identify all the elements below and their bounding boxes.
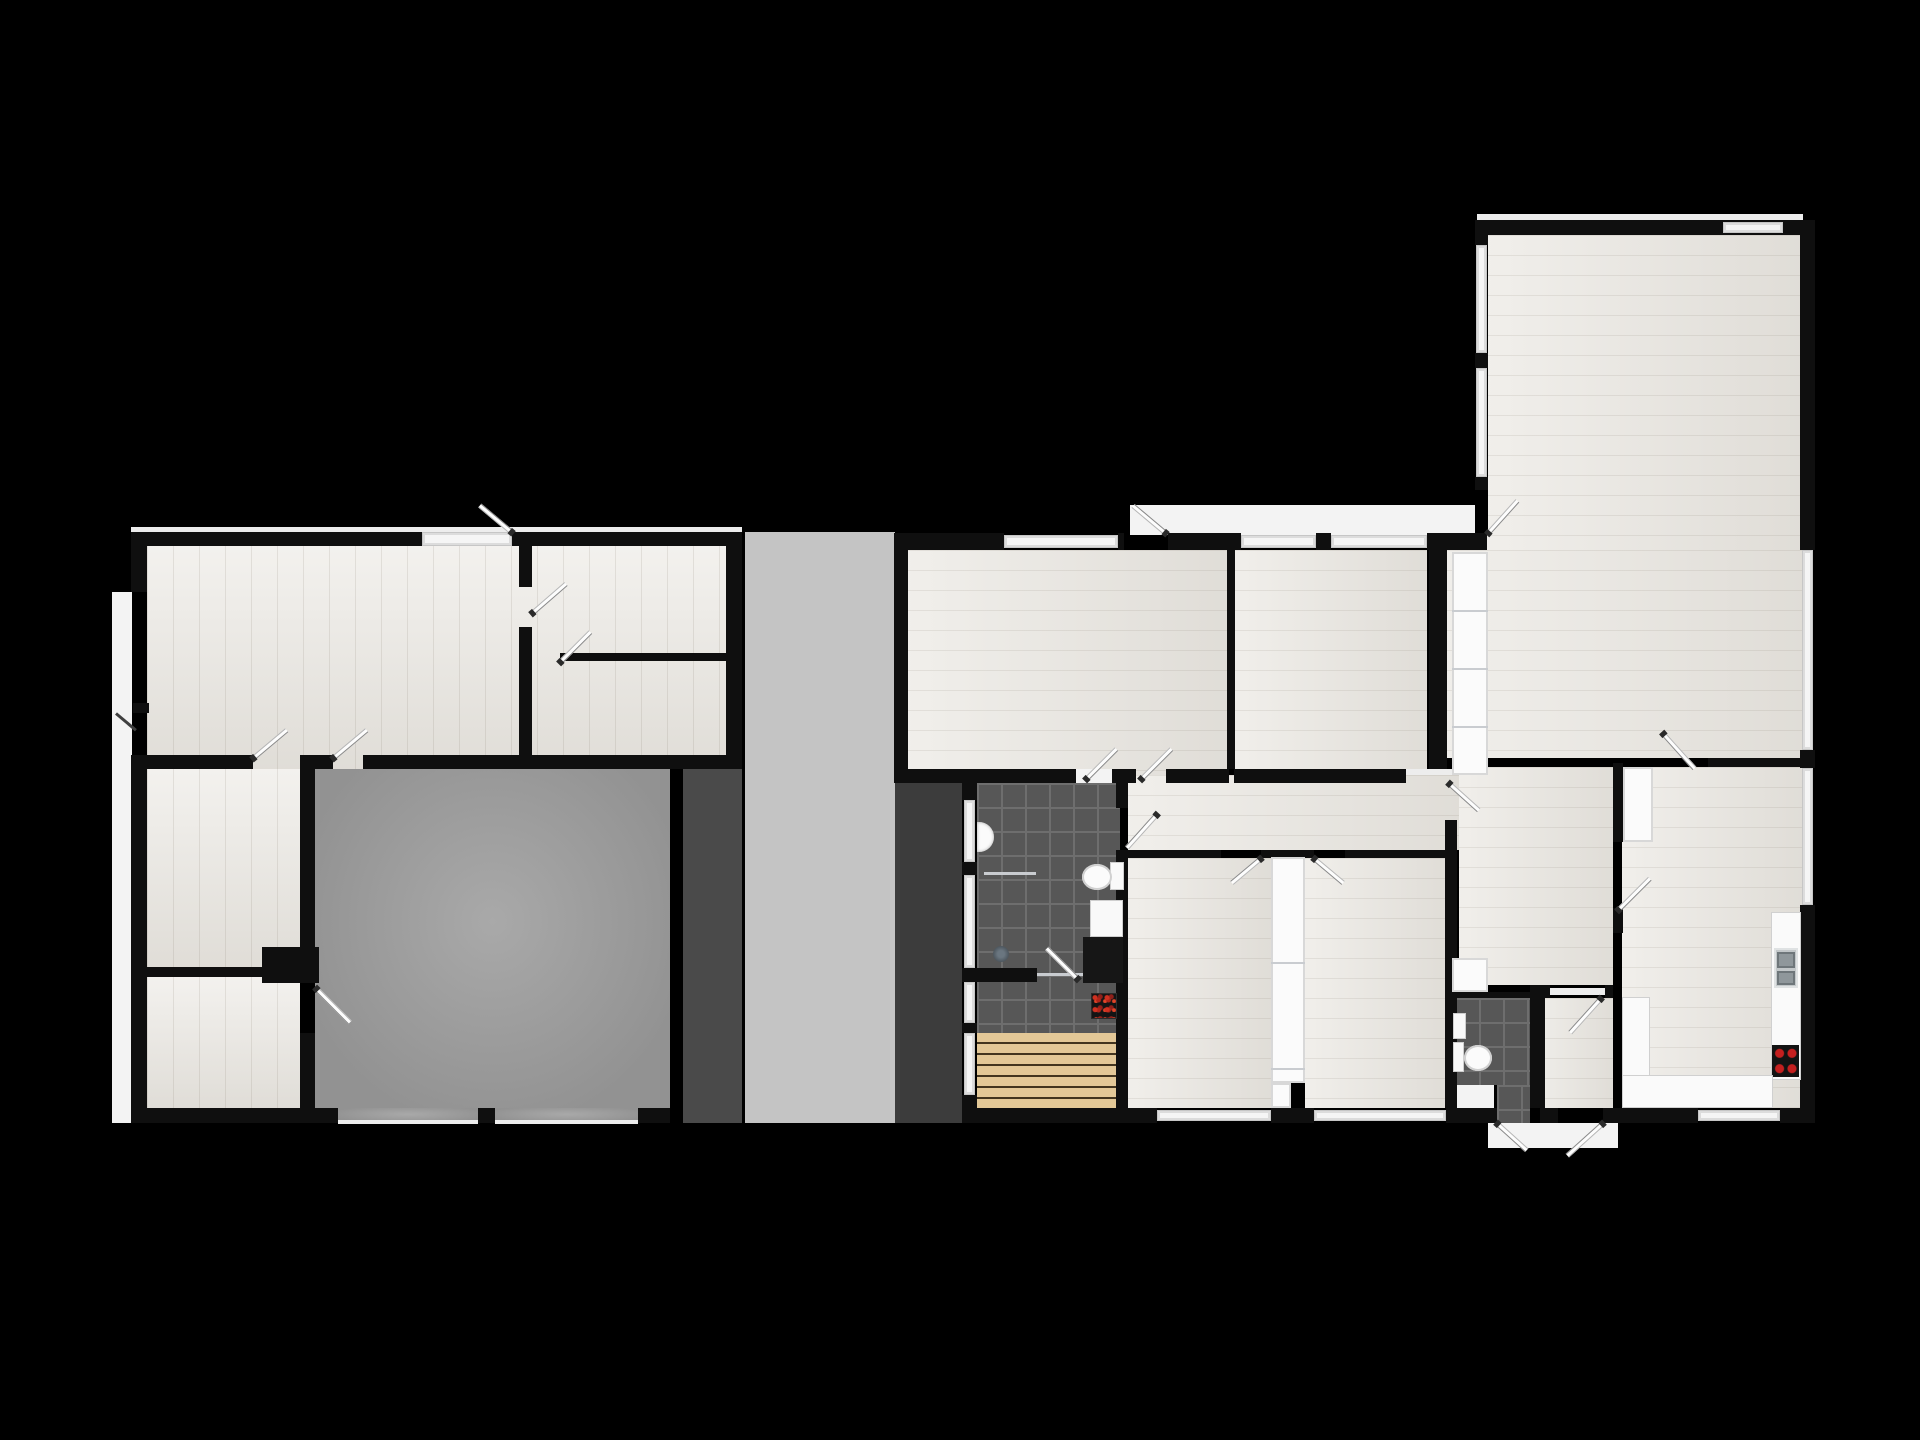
rp-wc-right-wall	[1530, 992, 1545, 1085]
lp-bottom-wall-right	[638, 1108, 670, 1123]
rp-bath-left-pier-3	[962, 968, 977, 982]
rp-kitchen-window	[1698, 1110, 1780, 1121]
rp-hall-door-bar	[1550, 988, 1605, 995]
wardrobe-divider-3	[1452, 726, 1488, 728]
rp-lr-left-wall-pier1	[1475, 235, 1488, 245]
rp-band-wall-2	[1112, 769, 1136, 783]
rp-band-wall-3	[1166, 769, 1229, 783]
bathroom-toilet-bowl	[1082, 864, 1112, 890]
bathroom-washer	[1090, 900, 1123, 937]
rp-lr-left-window-2	[1476, 368, 1487, 477]
rp-bath-window-2	[964, 875, 975, 968]
rp-lr-left-wall-pier3	[1475, 477, 1488, 490]
rp-hall-cross-wall-left	[1530, 985, 1550, 998]
rp-bedroom3-floor	[1128, 858, 1271, 1108]
between-plans-gray-band	[745, 532, 895, 1123]
lp-small-rooms-right-wall-lower	[300, 1033, 315, 1108]
rp-bottom-wall-5	[1603, 1108, 1698, 1123]
rp-room-a-window	[1004, 535, 1118, 548]
bathroom-towel-rail	[984, 872, 1036, 875]
left-plan-garage-floor	[315, 769, 670, 1108]
lp-bottom-wall-left	[131, 1108, 338, 1123]
rp-kitchen-counter-south	[1622, 1075, 1773, 1108]
rp-hall-closet	[1452, 958, 1488, 992]
garage-threshold-line-1	[338, 1120, 478, 1124]
lp-right-wall	[726, 546, 742, 769]
rp-bedroom4-window	[1314, 1110, 1446, 1121]
kitchen-sink-basin-1	[1777, 952, 1795, 968]
rp-wc-tile-floor	[1455, 998, 1530, 1085]
rp-bedrooms-top-wall-1	[1128, 850, 1221, 858]
floorplan-canvas	[0, 0, 1920, 1440]
rp-kitchen-tall-cabinet	[1623, 767, 1653, 842]
rp-right-window-2	[1802, 768, 1813, 905]
left-plan-sidewalk	[112, 592, 132, 1123]
rp-kitchen-west-wall	[1613, 763, 1623, 842]
wc-toilet-bowl	[1464, 1045, 1492, 1071]
kitchen-stove	[1772, 1045, 1799, 1077]
rp-right-window-1	[1802, 550, 1813, 750]
rp-dark-yard	[895, 769, 962, 1123]
rp-top-wall-connector	[1427, 533, 1487, 550]
rp-right-wall-top	[1800, 220, 1815, 550]
rp-right-wall-bottom	[1800, 905, 1815, 1123]
rp-wall-room-a-b	[1227, 550, 1235, 769]
rp-bath-left-pier-1	[962, 783, 977, 800]
closet-divider-line-2	[1271, 1068, 1305, 1070]
left-plan-small-room-upper-floor	[147, 769, 300, 967]
lp-midwall-a	[147, 755, 253, 769]
rp-room-b-window-2	[1331, 535, 1427, 548]
rp-left-wall	[894, 550, 908, 769]
rp-bath-left-pier-5	[962, 1095, 977, 1108]
rp-lr-kitchen-wall	[1708, 758, 1803, 767]
rp-livingroom-mid-floor	[1447, 550, 1802, 758]
rp-bottom-wall-3	[1446, 1108, 1497, 1123]
rp-sauna-benches	[977, 1033, 1120, 1108]
rp-bottom-wall-6	[1780, 1108, 1815, 1123]
rp-shower-stub-wall	[977, 968, 1037, 982]
rp-livingroom-top-window	[1723, 222, 1783, 233]
lp-left-wall-lower	[131, 755, 147, 1108]
rp-bath-left-pier-2	[962, 862, 977, 875]
lp-top-trim	[131, 527, 742, 532]
wardrobe-divider-2	[1452, 668, 1488, 670]
rp-lr-left-wall-pier2	[1475, 353, 1488, 368]
rp-lr-left-window-1	[1476, 245, 1487, 353]
rp-top-wall-a2	[1118, 533, 1124, 550]
lp-bottom-wall-mid	[478, 1108, 495, 1123]
lp-divider-wall-upper	[519, 546, 532, 587]
bathroom-toilet-tank	[1110, 862, 1124, 890]
rp-bottom-wall-4	[1540, 1108, 1558, 1123]
rp-bottom-wall-2	[1271, 1108, 1314, 1123]
lp-top-wall-left	[131, 532, 422, 546]
wardrobe-divider-1	[1452, 610, 1488, 612]
rp-bedroom4-floor	[1305, 858, 1446, 1108]
rp-bath-window-1	[964, 800, 975, 862]
rp-wc-top-wall	[1452, 992, 1530, 998]
rp-hall-floor	[1459, 767, 1613, 985]
left-plan-dark-yard	[683, 769, 742, 1123]
rp-livingroom-top-floor	[1488, 235, 1802, 535]
lp-divider-wall-lower	[519, 627, 532, 755]
rp-bath-window-4	[964, 1033, 975, 1095]
wc-toilet-tank	[1453, 1042, 1464, 1072]
sauna-heater	[1091, 993, 1117, 1019]
garage-threshold-line-2	[495, 1120, 638, 1124]
rp-band-wall-4	[1234, 769, 1406, 783]
rp-entrance-porch	[1130, 505, 1475, 535]
rp-wc-white-floor	[1452, 1085, 1494, 1108]
rp-bath-right-wall-top	[1116, 783, 1128, 808]
rp-room-a-floor	[908, 550, 1229, 775]
kitchen-sink-basin-2	[1777, 971, 1795, 985]
rp-wall-room-b-lr	[1429, 550, 1447, 769]
lp-left-wall-stub	[133, 703, 149, 713]
rp-livingroom-strip-floor	[1487, 535, 1802, 550]
rp-room-b-window-1	[1241, 535, 1316, 548]
left-plan-small-room-lower-floor	[147, 977, 300, 1108]
lp-right-rooms-wall	[560, 653, 726, 661]
rp-wc-lobby-tile	[1497, 1085, 1530, 1123]
rp-top-wall-a3	[1168, 533, 1241, 550]
rp-top-wall-pier	[1316, 533, 1331, 550]
rp-livingroom-wardrobe	[1452, 552, 1488, 775]
bathroom-dark-counter	[1083, 937, 1123, 983]
lp-midwall-d	[519, 755, 742, 769]
rp-livingroom-top-trim	[1477, 214, 1803, 220]
rp-closet-column-foot	[1271, 1083, 1291, 1108]
lp-top-door-opening	[422, 532, 512, 546]
rp-wc-right-wall-foot	[1530, 1085, 1545, 1108]
lp-midwall-c	[363, 755, 519, 769]
rp-corridor-floor	[1128, 775, 1459, 850]
rp-room-b-floor	[1234, 550, 1427, 775]
rp-hall-cross-wall-right	[1605, 985, 1613, 998]
lp-top-wall-right	[512, 532, 742, 546]
wc-sink	[1453, 1013, 1466, 1039]
rp-bath-window-3	[964, 982, 975, 1023]
lp-wall-nub	[262, 947, 319, 983]
rp-bedroom3-window	[1157, 1110, 1271, 1121]
rp-bedrooms-top-wall-3	[1345, 850, 1446, 858]
closet-divider-line-1	[1271, 962, 1305, 964]
rp-band-wall-1	[894, 769, 1076, 783]
lp-midwall-b	[300, 755, 333, 769]
rp-bottom-wall-1	[962, 1108, 1157, 1123]
lp-left-wall-upper	[131, 546, 147, 592]
rp-top-wall-a1	[894, 533, 1004, 550]
rp-bedrooms-closet-column	[1271, 857, 1305, 1083]
bathroom-shower-head	[993, 946, 1009, 962]
rp-bath-left-pier-4	[962, 1023, 977, 1033]
